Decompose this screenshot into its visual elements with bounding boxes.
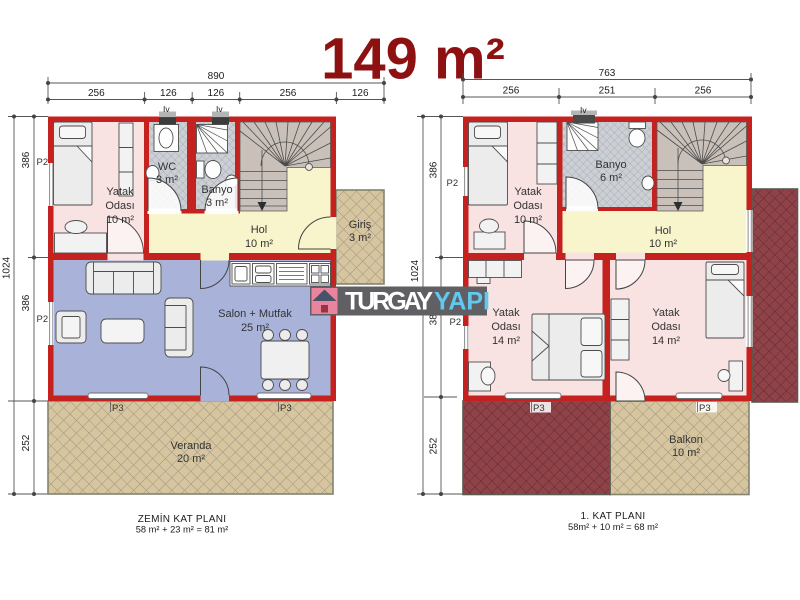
svg-text:TURGAY: TURGAY <box>345 288 433 316</box>
svg-text:1024: 1024 <box>2 256 13 279</box>
svg-text:P3: P3 <box>699 403 711 414</box>
svg-text:Balkon: Balkon <box>669 434 703 446</box>
svg-text:256: 256 <box>280 88 297 99</box>
svg-text:Banyo: Banyo <box>595 159 626 171</box>
svg-text:149 m²: 149 m² <box>321 27 505 92</box>
svg-text:256: 256 <box>503 86 520 97</box>
svg-text:P3: P3 <box>280 403 292 414</box>
svg-text:252: 252 <box>21 434 32 451</box>
svg-text:126: 126 <box>160 88 177 99</box>
svg-text:P2: P2 <box>450 317 462 328</box>
svg-text:14 m²: 14 m² <box>492 335 520 347</box>
svg-text:251: 251 <box>599 86 616 97</box>
svg-text:ZEMİN KAT PLANI: ZEMİN KAT PLANI <box>138 512 227 525</box>
svg-text:256: 256 <box>695 86 712 97</box>
svg-text:P2: P2 <box>37 157 49 168</box>
svg-text:10 m²: 10 m² <box>514 214 542 226</box>
svg-text:P3: P3 <box>112 403 124 414</box>
svg-text:890: 890 <box>208 71 225 82</box>
svg-text:Yatak: Yatak <box>514 186 542 198</box>
svg-text:14 m²: 14 m² <box>652 335 680 347</box>
svg-text:Salon + Mutfak: Salon + Mutfak <box>218 308 292 320</box>
svg-text:Banyo: Banyo <box>201 184 232 196</box>
svg-text:Yatak: Yatak <box>492 307 520 319</box>
svg-text:10 m²: 10 m² <box>649 238 677 250</box>
svg-text:252: 252 <box>429 437 440 454</box>
svg-text:P2: P2 <box>447 178 459 189</box>
svg-text:20 m²: 20 m² <box>177 453 205 465</box>
svg-text:10 m²: 10 m² <box>106 214 134 226</box>
svg-text:P3: P3 <box>533 403 545 414</box>
svg-text:126: 126 <box>352 88 369 99</box>
svg-text:386: 386 <box>21 294 32 311</box>
svg-text:1. KAT PLANI: 1. KAT PLANI <box>581 511 646 522</box>
svg-text:Odası: Odası <box>491 321 520 333</box>
svg-text:6 m²: 6 m² <box>600 172 622 184</box>
svg-text:3 m²: 3 m² <box>206 197 228 209</box>
svg-text:YAPI: YAPI <box>434 288 490 316</box>
svg-text:1024: 1024 <box>410 259 421 282</box>
svg-text:58 m² + 23 m² = 81 m²: 58 m² + 23 m² = 81 m² <box>136 525 228 535</box>
svg-text:P2: P2 <box>37 314 49 325</box>
svg-text:Giriş: Giriş <box>349 219 372 231</box>
svg-text:386: 386 <box>429 161 440 178</box>
svg-text:Iv: Iv <box>216 104 223 114</box>
svg-text:Yatak: Yatak <box>106 186 134 198</box>
svg-text:25 m²: 25 m² <box>241 322 269 334</box>
svg-text:Iv: Iv <box>163 104 170 114</box>
svg-text:3 m²: 3 m² <box>156 174 178 186</box>
svg-text:10 m²: 10 m² <box>245 238 273 250</box>
svg-text:Veranda: Veranda <box>171 440 213 452</box>
svg-text:Odası: Odası <box>513 200 542 212</box>
svg-text:Hol: Hol <box>251 224 268 236</box>
svg-text:58m² + 10 m² = 68 m²: 58m² + 10 m² = 68 m² <box>568 522 658 532</box>
svg-text:126: 126 <box>208 88 225 99</box>
svg-text:Hol: Hol <box>655 225 672 237</box>
svg-text:10 m²: 10 m² <box>672 447 700 459</box>
svg-text:386: 386 <box>21 151 32 168</box>
svg-text:3 m²: 3 m² <box>349 232 371 244</box>
svg-text:Odası: Odası <box>105 200 134 212</box>
svg-text:WC: WC <box>158 161 176 173</box>
svg-text:Iv: Iv <box>580 105 587 115</box>
svg-text:763: 763 <box>599 68 616 79</box>
svg-text:256: 256 <box>88 88 105 99</box>
svg-text:Yatak: Yatak <box>652 307 680 319</box>
svg-text:Odası: Odası <box>651 321 680 333</box>
